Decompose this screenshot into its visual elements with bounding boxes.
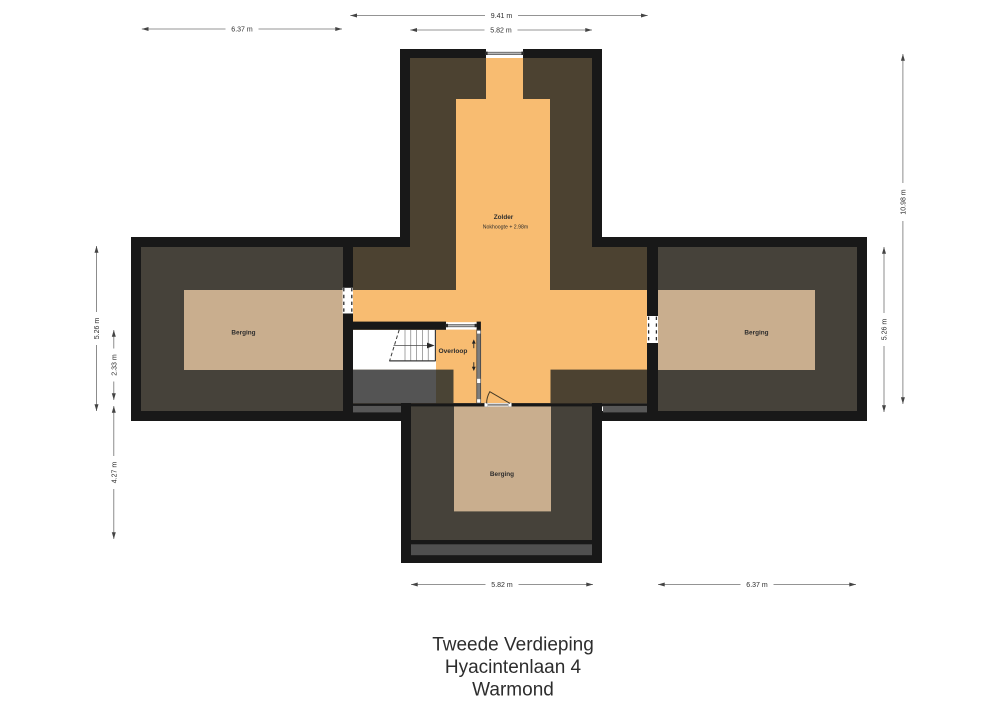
svg-text:5.26 m: 5.26 m: [882, 319, 889, 341]
svg-text:5.26 m: 5.26 m: [94, 318, 101, 340]
svg-text:Berging: Berging: [744, 330, 768, 337]
svg-text:5.82 m: 5.82 m: [490, 28, 512, 35]
svg-text:Berging: Berging: [231, 330, 255, 337]
svg-text:5.82 m: 5.82 m: [491, 582, 513, 589]
svg-text:Berging: Berging: [490, 471, 514, 478]
svg-text:6.37 m: 6.37 m: [231, 27, 253, 34]
svg-text:Warmond: Warmond: [472, 680, 554, 701]
svg-text:Hyacintenlaan 4: Hyacintenlaan 4: [445, 657, 582, 678]
svg-text:Overloop: Overloop: [439, 348, 468, 355]
svg-text:9.41 m: 9.41 m: [491, 13, 513, 20]
svg-text:Nokhoogte + 2.98m: Nokhoogte + 2.98m: [483, 224, 528, 230]
svg-text:Zolder: Zolder: [494, 214, 514, 221]
svg-text:10.98 m: 10.98 m: [900, 189, 907, 214]
svg-text:Tweede Verdieping: Tweede Verdieping: [432, 635, 594, 656]
svg-text:2.33 m: 2.33 m: [111, 354, 118, 376]
svg-text:6.37 m: 6.37 m: [746, 582, 768, 589]
svg-text:4.27 m: 4.27 m: [111, 462, 118, 484]
